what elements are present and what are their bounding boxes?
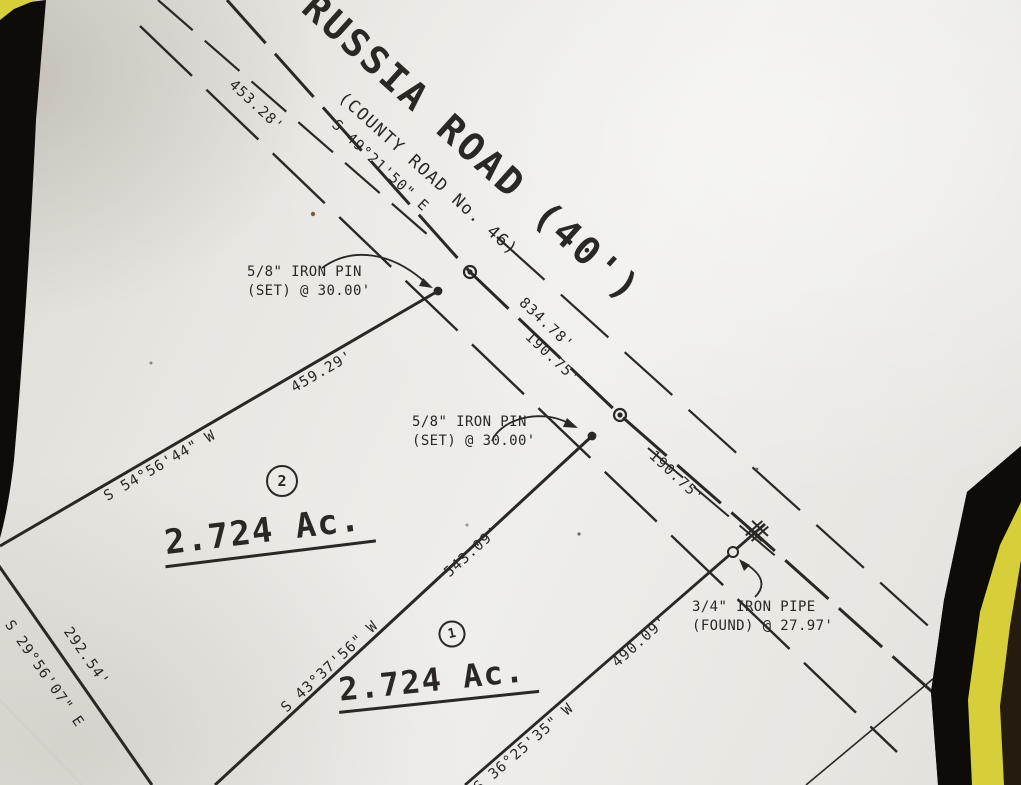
pin-top-label-line1: 5/8" IRON PIN (247, 263, 371, 282)
pin-top-label: 5/8" IRON PIN (SET) @ 30.00' (247, 263, 371, 301)
lot2-north-line (0, 291, 438, 546)
plat-photo: RUSSIA ROAD (40') (COUNTY ROAD No. 46) 4… (0, 0, 1021, 785)
monument-dot-top (467, 269, 472, 274)
road-edge-southwest (140, 26, 897, 752)
leader-lines (322, 255, 761, 597)
road-centerline (227, 0, 948, 706)
pin-mid-label-line1: 5/8" IRON PIN (412, 413, 536, 432)
iron-pin-mid (588, 432, 597, 441)
iron-pipe-found (728, 547, 738, 557)
pipe-label-line1: 3/4" IRON PIPE (692, 598, 833, 617)
road-edge-upper-inner (158, 0, 436, 242)
pipe-label-line2: (FOUND) @ 27.97' (692, 617, 833, 636)
lot2-west-line (0, 553, 152, 785)
lot2-number-circle: 2 (266, 465, 298, 497)
pin-mid-label-line2: (SET) @ 30.00' (412, 432, 536, 451)
pin-top-label-line2: (SET) @ 30.00' (247, 282, 371, 301)
pipe-label: 3/4" IRON PIPE (FOUND) @ 27.97' (692, 598, 833, 636)
iron-pin-top (434, 287, 443, 296)
monuments (434, 266, 738, 557)
pin-mid-label: 5/8" IRON PIN (SET) @ 30.00' (412, 413, 536, 451)
left-black-border (0, 0, 46, 538)
far-parcel-line (806, 678, 934, 785)
lot-lines (0, 291, 934, 785)
monument-dot-mid (617, 412, 622, 417)
dust-specks (150, 212, 759, 536)
road-edge-northeast (497, 237, 955, 650)
